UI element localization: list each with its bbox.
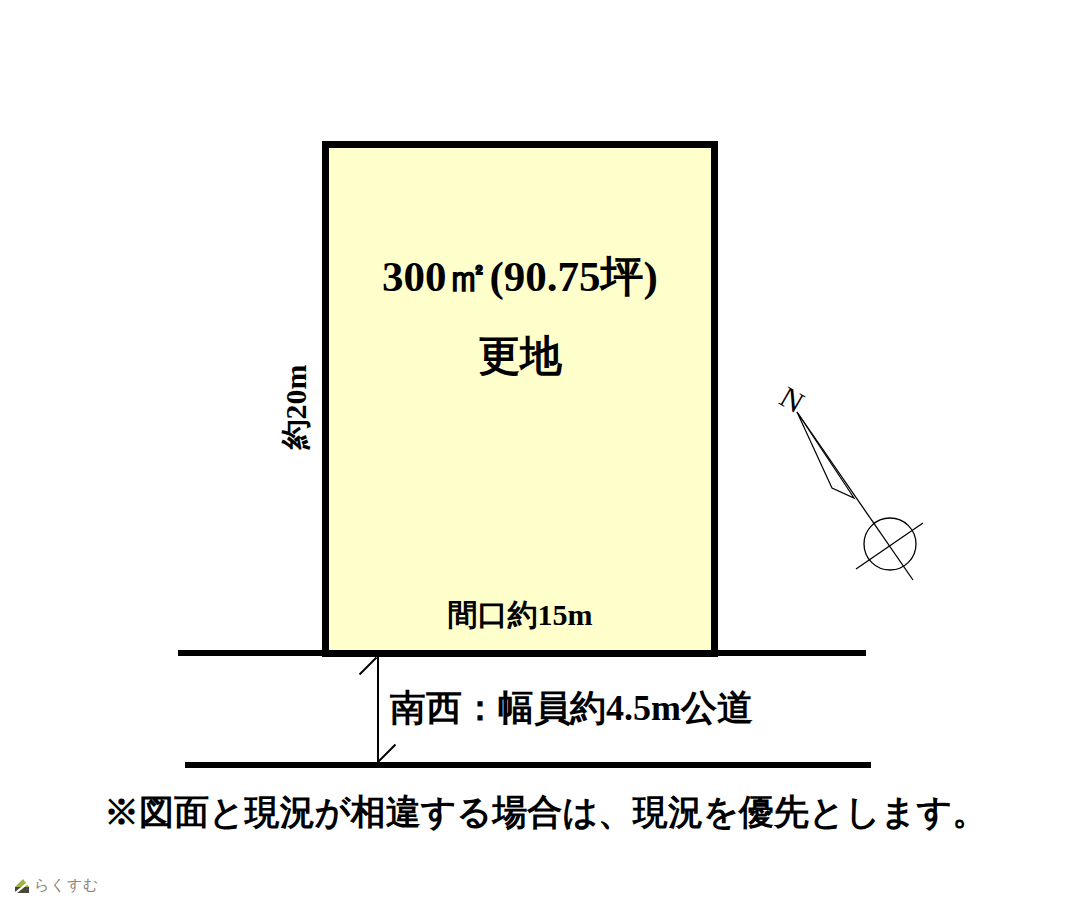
site-plan-canvas: 300㎡(90.75坪) 更地 間口約15m 約20m 南西：幅員約4.5m公道… xyxy=(0,0,1066,902)
logo-text: らくすむ xyxy=(34,876,99,895)
dimension-tick-bottom xyxy=(378,744,396,762)
road-label: 南西：幅員約4.5m公道 xyxy=(390,684,753,733)
house-logo-icon xyxy=(14,878,30,894)
road-edge-line-bottom xyxy=(185,762,871,768)
plot-area-label: 300㎡(90.75坪) xyxy=(322,248,718,306)
disclaimer-note: ※図面と現況が相違する場合は、現況を優先とします。 xyxy=(104,789,987,836)
road-width-dimension-line xyxy=(377,657,379,764)
plot-depth-label: 約20m xyxy=(276,337,310,477)
plot-condition-label: 更地 xyxy=(322,328,718,384)
compass-north-letter: N xyxy=(774,380,809,419)
site-logo: らくすむ xyxy=(14,876,99,895)
land-plot xyxy=(322,141,718,657)
dimension-tick-top xyxy=(359,657,377,675)
plot-frontage-label: 間口約15m xyxy=(322,595,718,636)
north-compass-icon: N xyxy=(760,378,940,598)
